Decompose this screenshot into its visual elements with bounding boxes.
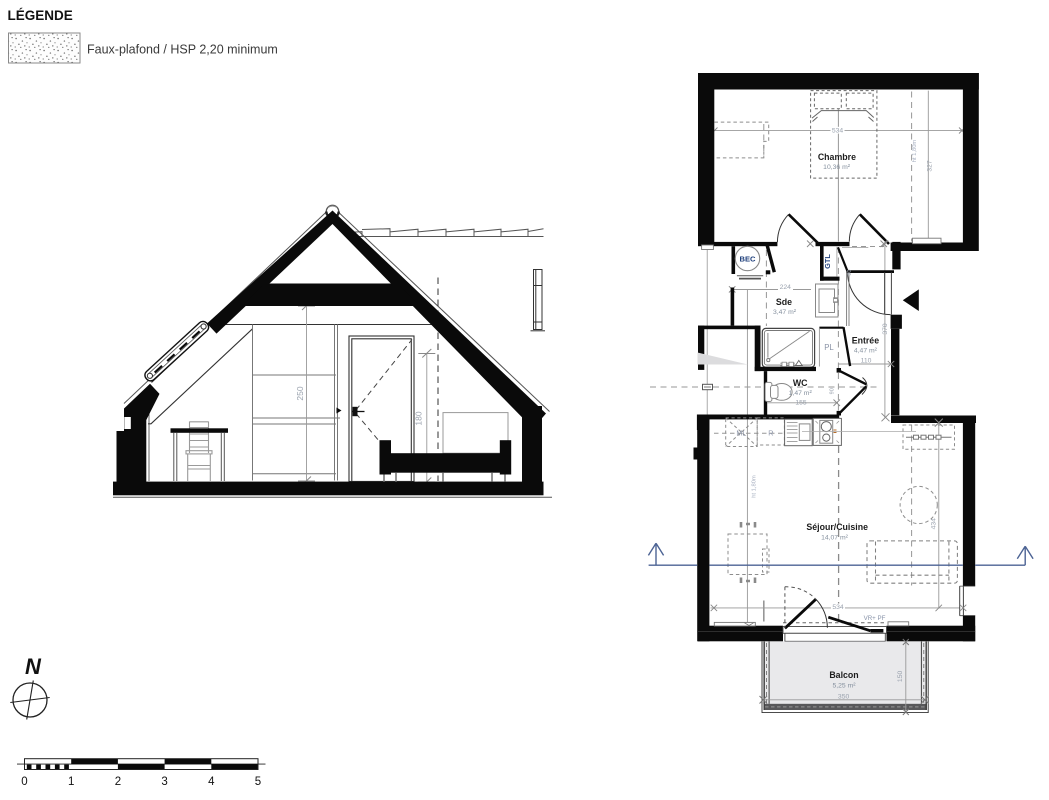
svg-text:250: 250	[295, 386, 305, 400]
svg-text:PL: PL	[824, 343, 834, 352]
svg-text:534: 534	[832, 604, 844, 611]
svg-text:Chambre: Chambre	[818, 152, 856, 162]
svg-text:1,47 m²: 1,47 m²	[789, 390, 813, 397]
svg-text:90: 90	[830, 388, 836, 394]
svg-text:2: 2	[115, 776, 121, 788]
svg-text:Entrée: Entrée	[852, 335, 879, 345]
svg-text:ht 1,80m: ht 1,80m	[752, 475, 758, 498]
svg-text:Balcon: Balcon	[829, 670, 858, 680]
svg-text:WC: WC	[793, 378, 808, 388]
svg-text:Sde: Sde	[776, 297, 792, 307]
svg-text:534: 534	[832, 128, 844, 135]
svg-text:1: 1	[68, 776, 74, 788]
svg-text:5: 5	[255, 776, 261, 788]
svg-text:LÉGENDE: LÉGENDE	[8, 8, 73, 23]
svg-text:370: 370	[882, 323, 889, 335]
svg-text:4: 4	[208, 776, 215, 788]
svg-text:0: 0	[21, 776, 27, 788]
svg-text:14,07 m²: 14,07 m²	[821, 534, 849, 541]
svg-text:GTL: GTL	[823, 254, 832, 269]
svg-text:90: 90	[847, 270, 853, 276]
svg-text:Faux-plafond / HSP 2,20 minimu: Faux-plafond / HSP 2,20 minimum	[87, 43, 278, 57]
svg-text:R: R	[768, 428, 773, 437]
svg-text:VR+ PF: VR+ PF	[864, 615, 886, 622]
svg-text:ht 1,80m: ht 1,80m	[912, 140, 918, 163]
svg-text:N: N	[25, 654, 42, 679]
svg-text:BEC: BEC	[739, 255, 756, 264]
svg-text:4,47 m²: 4,47 m²	[854, 347, 878, 354]
svg-text:350: 350	[838, 693, 850, 700]
svg-text:10,36 m²: 10,36 m²	[823, 164, 851, 171]
svg-text:150: 150	[897, 671, 904, 683]
svg-text:434: 434	[930, 518, 937, 530]
svg-text:3,47 m²: 3,47 m²	[773, 309, 797, 316]
svg-text:5,25 m²: 5,25 m²	[832, 683, 856, 690]
svg-text:3: 3	[161, 776, 167, 788]
svg-text:ML: ML	[736, 428, 746, 437]
svg-text:Séjour/Cuisine: Séjour/Cuisine	[806, 522, 868, 532]
svg-text:110: 110	[861, 358, 872, 365]
svg-text:180: 180	[414, 411, 424, 425]
svg-text:155: 155	[795, 399, 807, 406]
svg-text:224: 224	[780, 284, 792, 291]
svg-text:327: 327	[927, 160, 934, 172]
